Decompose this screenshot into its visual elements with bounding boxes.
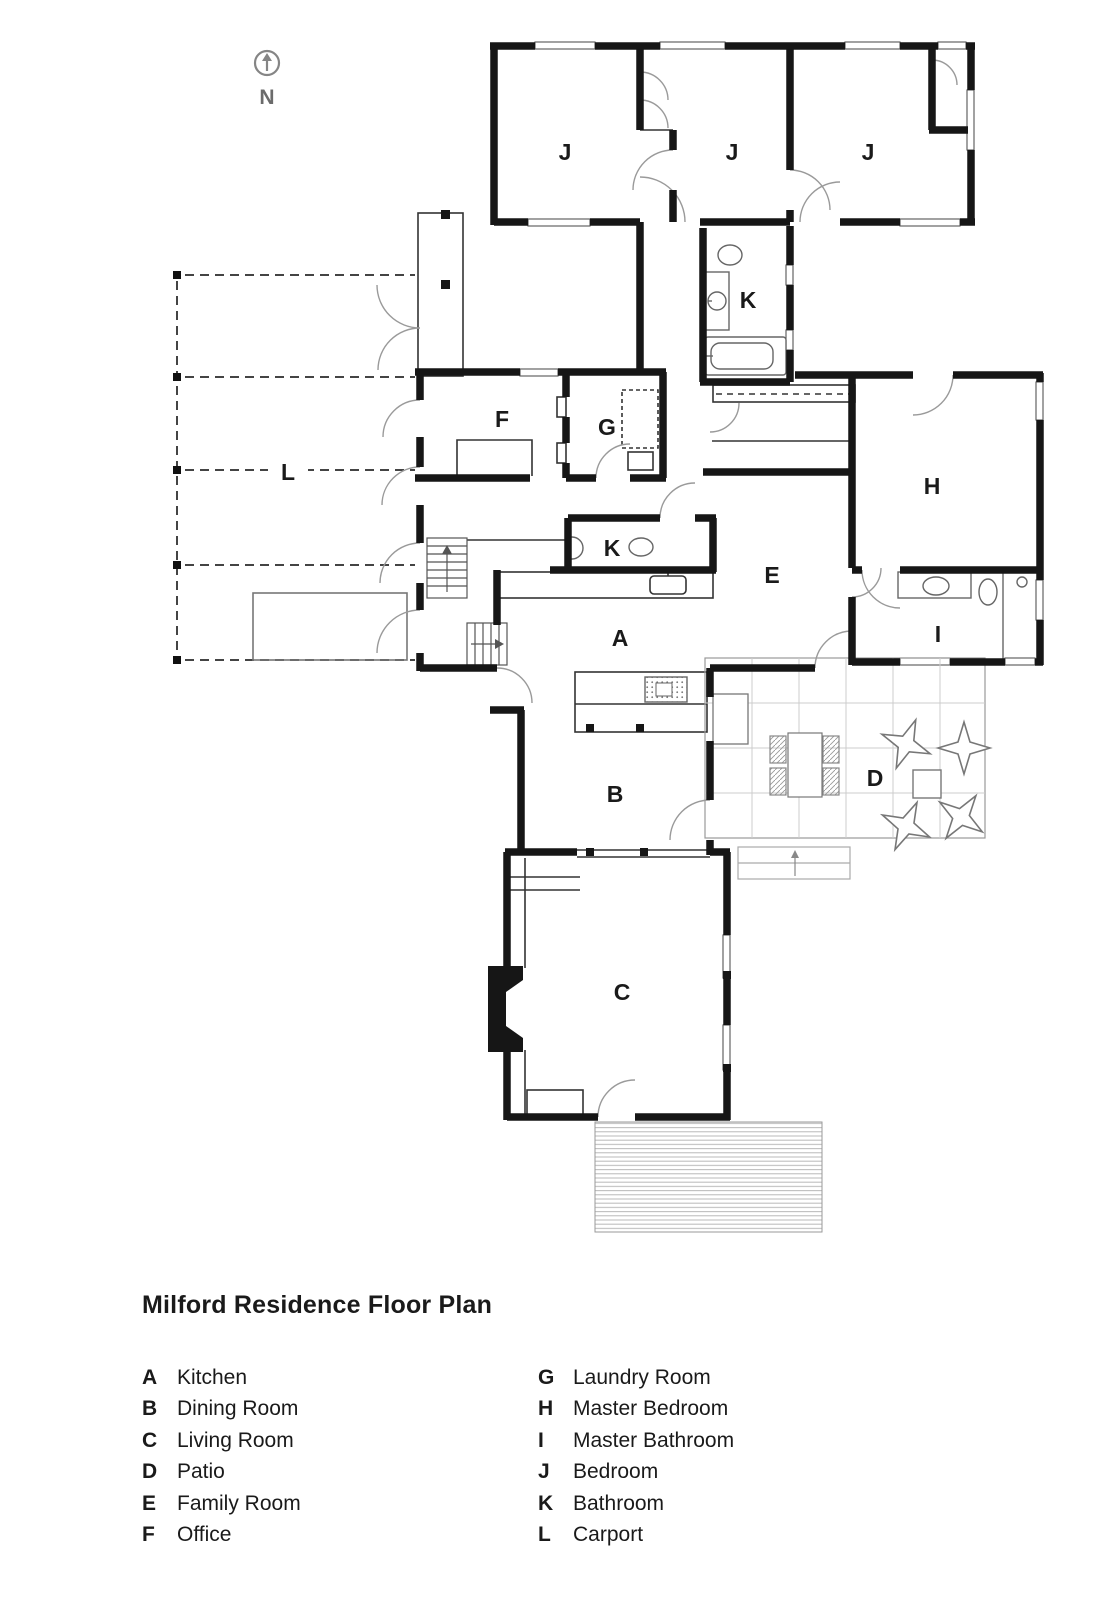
legend-name: Family Room: [177, 1492, 301, 1515]
legend-item: IMaster Bathroom: [538, 1425, 734, 1456]
room-label-kitchen: A: [612, 625, 629, 651]
legend-item: JBedroom: [538, 1456, 734, 1487]
legend-name: Patio: [177, 1460, 225, 1483]
legend-item: KBathroom: [538, 1488, 734, 1519]
legend-name: Bathroom: [573, 1492, 664, 1515]
legend-name: Dining Room: [177, 1397, 298, 1420]
north-arrow-icon: N: [255, 51, 279, 109]
legend-item: LCarport: [538, 1519, 734, 1550]
legend-column-left: AKitchen BDining Room CLiving Room DPati…: [142, 1362, 301, 1550]
chair-icon: [770, 768, 786, 795]
legend-name: Office: [177, 1523, 231, 1546]
legend-key: K: [538, 1488, 573, 1519]
legend-key: C: [142, 1425, 177, 1456]
legend-key: J: [538, 1456, 573, 1487]
floor-plan: J J J K F G L H K E I A B D C N: [0, 0, 1109, 1260]
room-label-office: F: [495, 406, 509, 432]
patio-area: [705, 658, 997, 879]
room-label-patio: D: [867, 765, 884, 791]
star-icon: [938, 722, 990, 774]
legend-key: D: [142, 1456, 177, 1487]
legend-name: Living Room: [177, 1429, 294, 1452]
fireplace-icon: [488, 966, 523, 1052]
legend-column-right: GLaundry Room HMaster Bedroom IMaster Ba…: [538, 1362, 734, 1550]
deck-hatched: [595, 1122, 822, 1232]
toilet-icon: [979, 579, 997, 605]
legend-item: DPatio: [142, 1456, 301, 1487]
shower-drain-icon: [1017, 577, 1027, 587]
room-label-master-bathroom: I: [935, 621, 941, 647]
room-label-living: C: [614, 979, 631, 1005]
legend-key: H: [538, 1393, 573, 1424]
legend-item: EFamily Room: [142, 1488, 301, 1519]
legend-key: G: [538, 1362, 573, 1393]
room-label-carport: L: [281, 459, 295, 485]
patio-steps: [738, 847, 850, 879]
legend-item: BDining Room: [142, 1393, 301, 1424]
room-label-bedroom-1: J: [559, 139, 572, 165]
legend-key: B: [142, 1393, 177, 1424]
windows-layer: [520, 42, 1043, 1070]
legend-key: L: [538, 1519, 573, 1550]
legend-name: Bedroom: [573, 1460, 658, 1483]
legend-item: AKitchen: [142, 1362, 301, 1393]
legend-name: Laundry Room: [573, 1366, 711, 1389]
legend-name: Kitchen: [177, 1366, 247, 1389]
legend-item: GLaundry Room: [538, 1362, 734, 1393]
legend-key: F: [142, 1519, 177, 1550]
toilet-icon: [718, 245, 742, 265]
chair-icon: [823, 768, 839, 795]
planter-square-icon: [913, 770, 941, 798]
legend-key: E: [142, 1488, 177, 1519]
room-label-laundry: G: [598, 414, 616, 440]
table-icon: [788, 733, 822, 797]
legend-item: HMaster Bedroom: [538, 1393, 734, 1424]
north-label: N: [259, 86, 274, 109]
room-label-bedroom-2: J: [726, 139, 739, 165]
sliding-door-leaf: [713, 694, 748, 744]
legend-key: I: [538, 1425, 573, 1456]
chair-icon: [770, 736, 786, 763]
star-icon: [871, 791, 940, 860]
room-label-bedroom-3: J: [862, 139, 875, 165]
room-label-master-bedroom: H: [924, 473, 941, 499]
legend-name: Master Bedroom: [573, 1397, 728, 1420]
sink-icon: [923, 577, 949, 595]
room-label-bathroom-upper: K: [740, 287, 757, 313]
toilet-icon: [629, 538, 653, 556]
legend-item: FOffice: [142, 1519, 301, 1550]
legend-name: Carport: [573, 1523, 643, 1546]
thin-walls-layer: [253, 130, 855, 1117]
room-label-dining: B: [607, 781, 624, 807]
wall-posts: [441, 210, 731, 1072]
room-label-family-room: E: [764, 562, 779, 588]
legend-item: CLiving Room: [142, 1425, 301, 1456]
chair-icon: [823, 736, 839, 763]
plan-title: Milford Residence Floor Plan: [142, 1291, 492, 1320]
page: J J J K F G L H K E I A B D C N Milford …: [0, 0, 1109, 1600]
legend-name: Master Bathroom: [573, 1429, 734, 1452]
room-label-bathroom-mid: K: [604, 535, 621, 561]
legend-key: A: [142, 1362, 177, 1393]
